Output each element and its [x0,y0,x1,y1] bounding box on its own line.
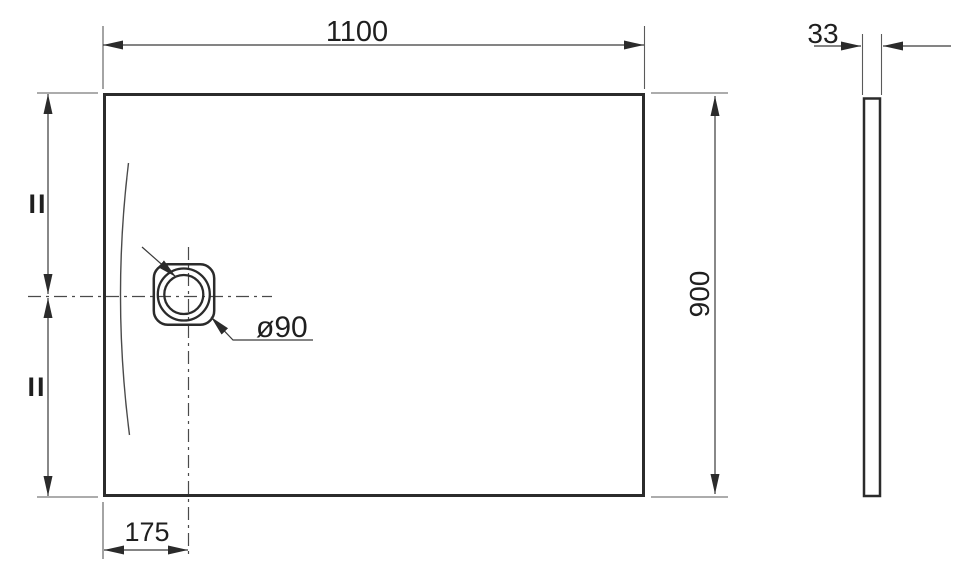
side-view: 33 [807,18,951,496]
slope-arc [120,163,129,435]
plan-view: ø90 [28,95,644,560]
drain-frame [154,264,214,324]
shower-tray-drawing: ø90 1100 900 II II 175 33 [0,0,960,586]
tray-outline [105,95,644,496]
height-dimension-label: 900 [684,271,715,318]
drain-outer-circle [158,269,210,321]
side-profile-outline [864,99,880,497]
dimension-equal-left: II II [27,93,98,497]
drain-symbol [154,264,214,324]
dimension-drain-offset: 175 [103,502,188,559]
drain-diameter-label: ø90 [256,311,308,344]
drain-offset-label: 175 [124,517,169,547]
width-dimension-label: 1100 [326,16,388,48]
drain-leader-line [142,247,176,277]
drain-inner-circle [164,275,203,314]
dimension-width: 1100 [103,16,645,89]
thickness-dimension-label: 33 [807,18,838,49]
dimension-height: 900 [651,93,728,497]
equal-mark-top: II [28,189,47,219]
equal-mark-bottom: II [27,372,46,402]
technical-drawing-canvas: ø90 1100 900 II II 175 33 [0,0,960,586]
